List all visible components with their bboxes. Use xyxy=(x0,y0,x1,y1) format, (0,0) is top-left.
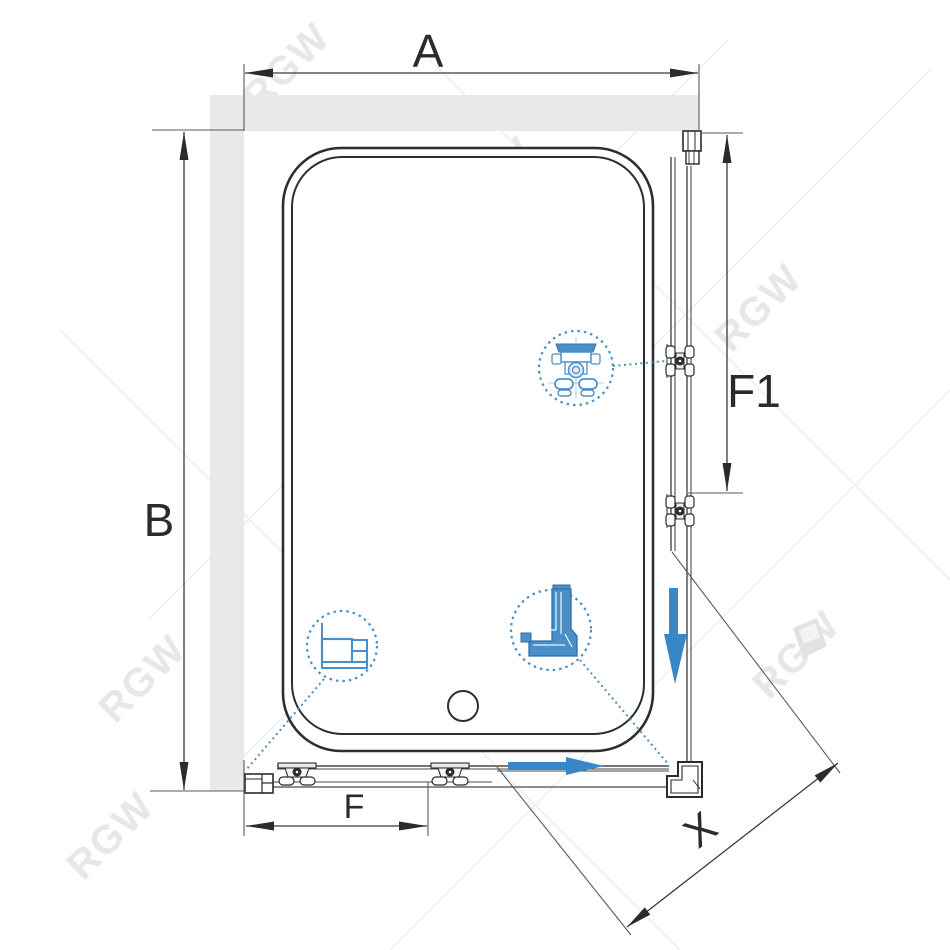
wall-top xyxy=(210,95,699,131)
schematic-canvas: RGW RGW RGW RGW RGW RGW xyxy=(0,0,950,950)
door-slide-down-arrow-icon xyxy=(664,588,687,684)
wall-bracket xyxy=(683,131,701,164)
drain xyxy=(448,691,478,721)
bottom-panel-assembly xyxy=(245,762,702,797)
dim-x-label: X xyxy=(675,802,726,856)
door-slide-right-arrow-icon xyxy=(508,757,604,775)
watermark-text: RGW xyxy=(745,603,849,707)
dim-b-label: B xyxy=(144,494,175,546)
dim-a-label: A xyxy=(413,25,444,77)
watermark-text: RGW xyxy=(59,784,163,888)
dim-f1-label: F1 xyxy=(727,365,781,417)
dim-x-extension xyxy=(497,767,631,935)
watermark-text: RGW xyxy=(91,627,195,731)
dim-f-label: F xyxy=(344,788,365,826)
side-roller-bottom xyxy=(666,494,694,528)
corner-post xyxy=(667,762,702,797)
watermark-text: RGW xyxy=(707,256,811,360)
dimension-f: F xyxy=(244,760,428,836)
wall-profile xyxy=(245,774,273,793)
diagram-svg: RGW RGW RGW RGW RGW RGW xyxy=(0,0,950,950)
side-panel-assembly xyxy=(666,131,701,762)
wall-left xyxy=(210,95,244,791)
side-roller-top xyxy=(666,344,694,378)
